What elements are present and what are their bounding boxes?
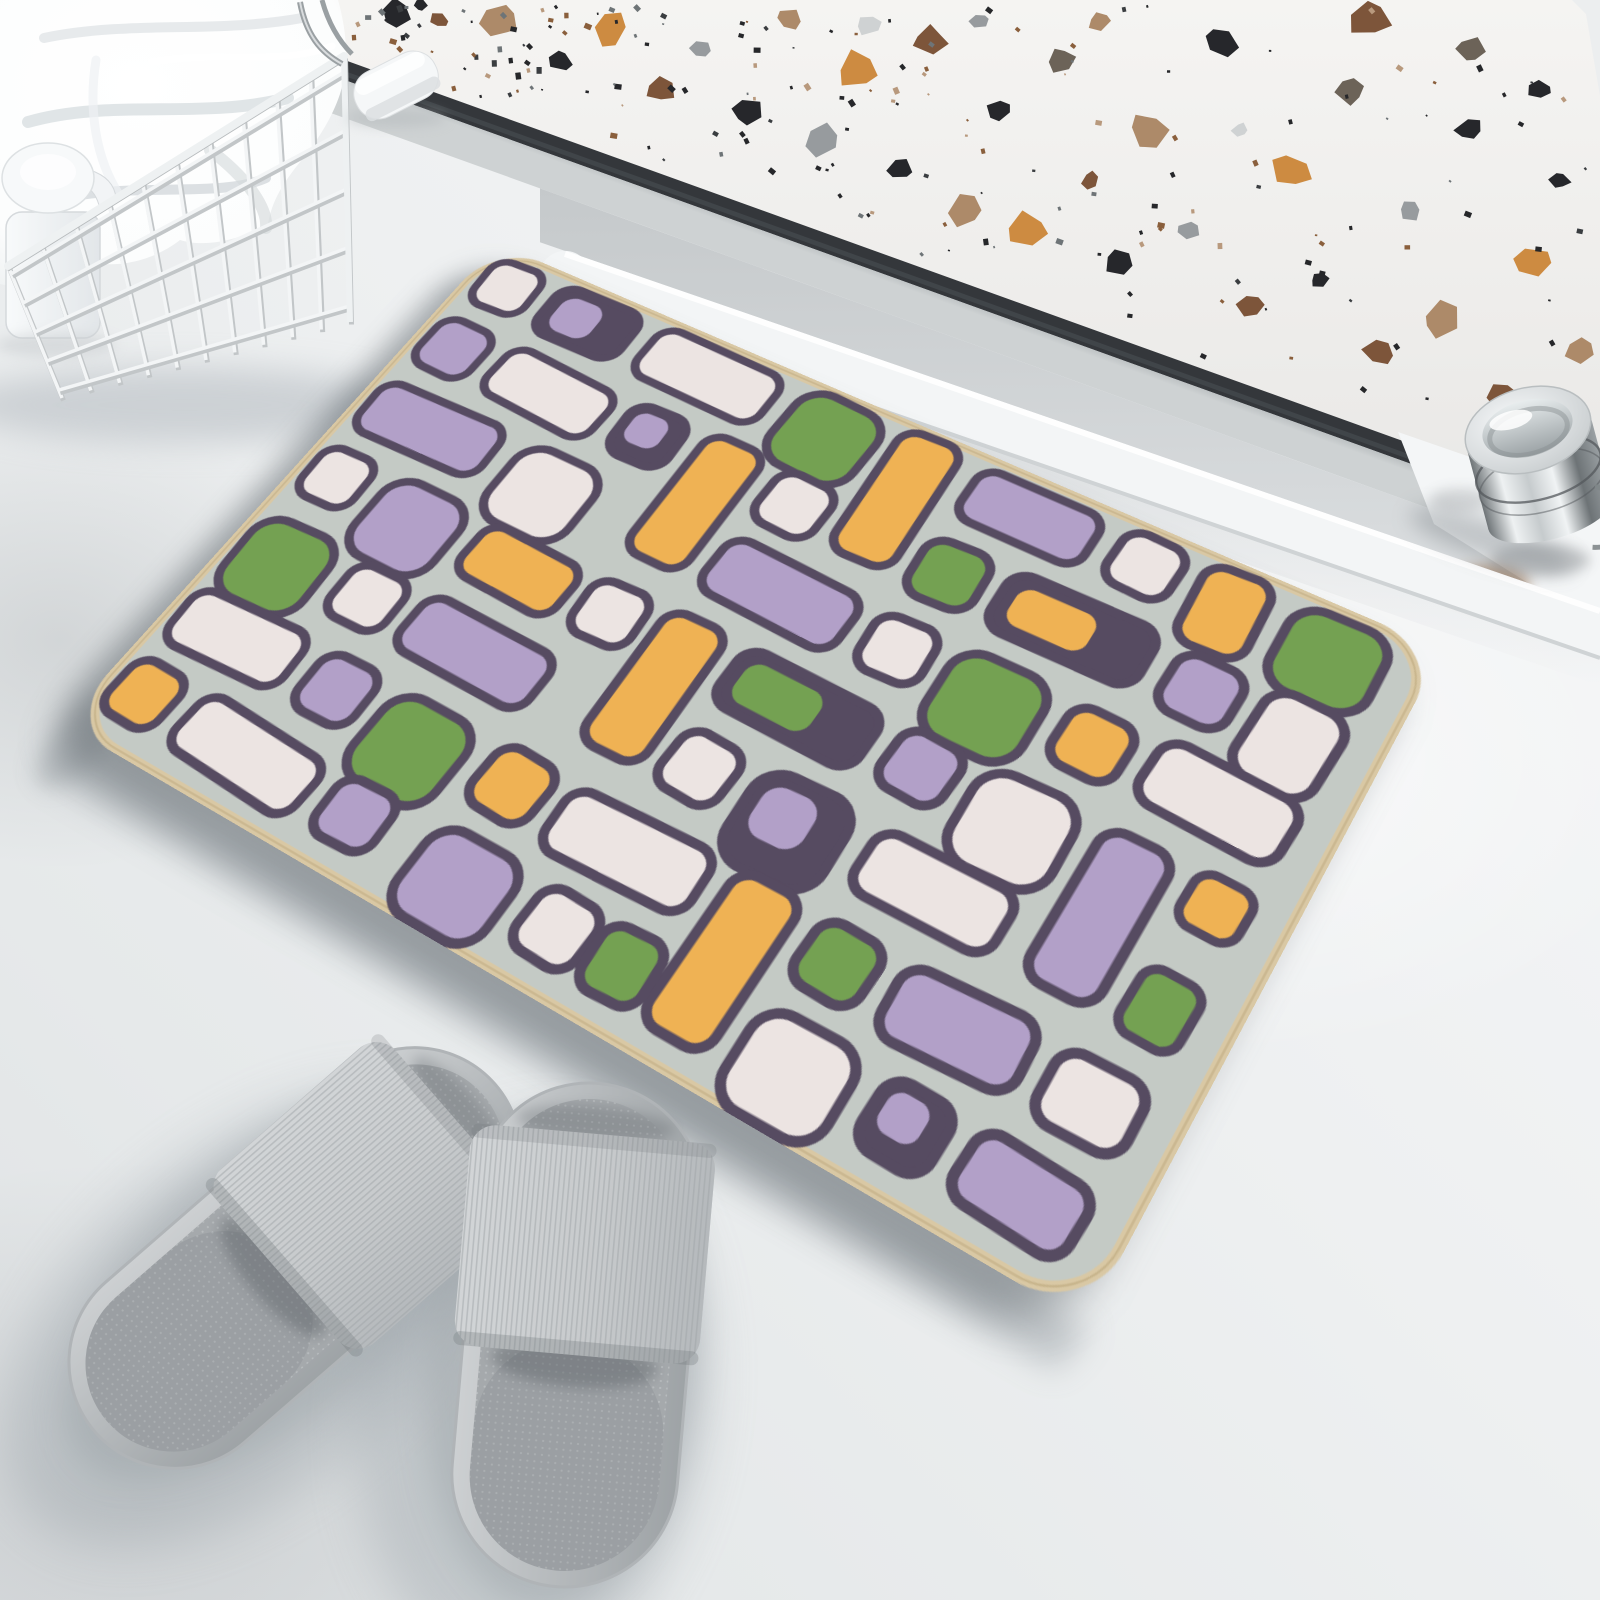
foreground-graphics xyxy=(0,0,1600,1600)
bathroom-scene xyxy=(0,0,1600,1600)
